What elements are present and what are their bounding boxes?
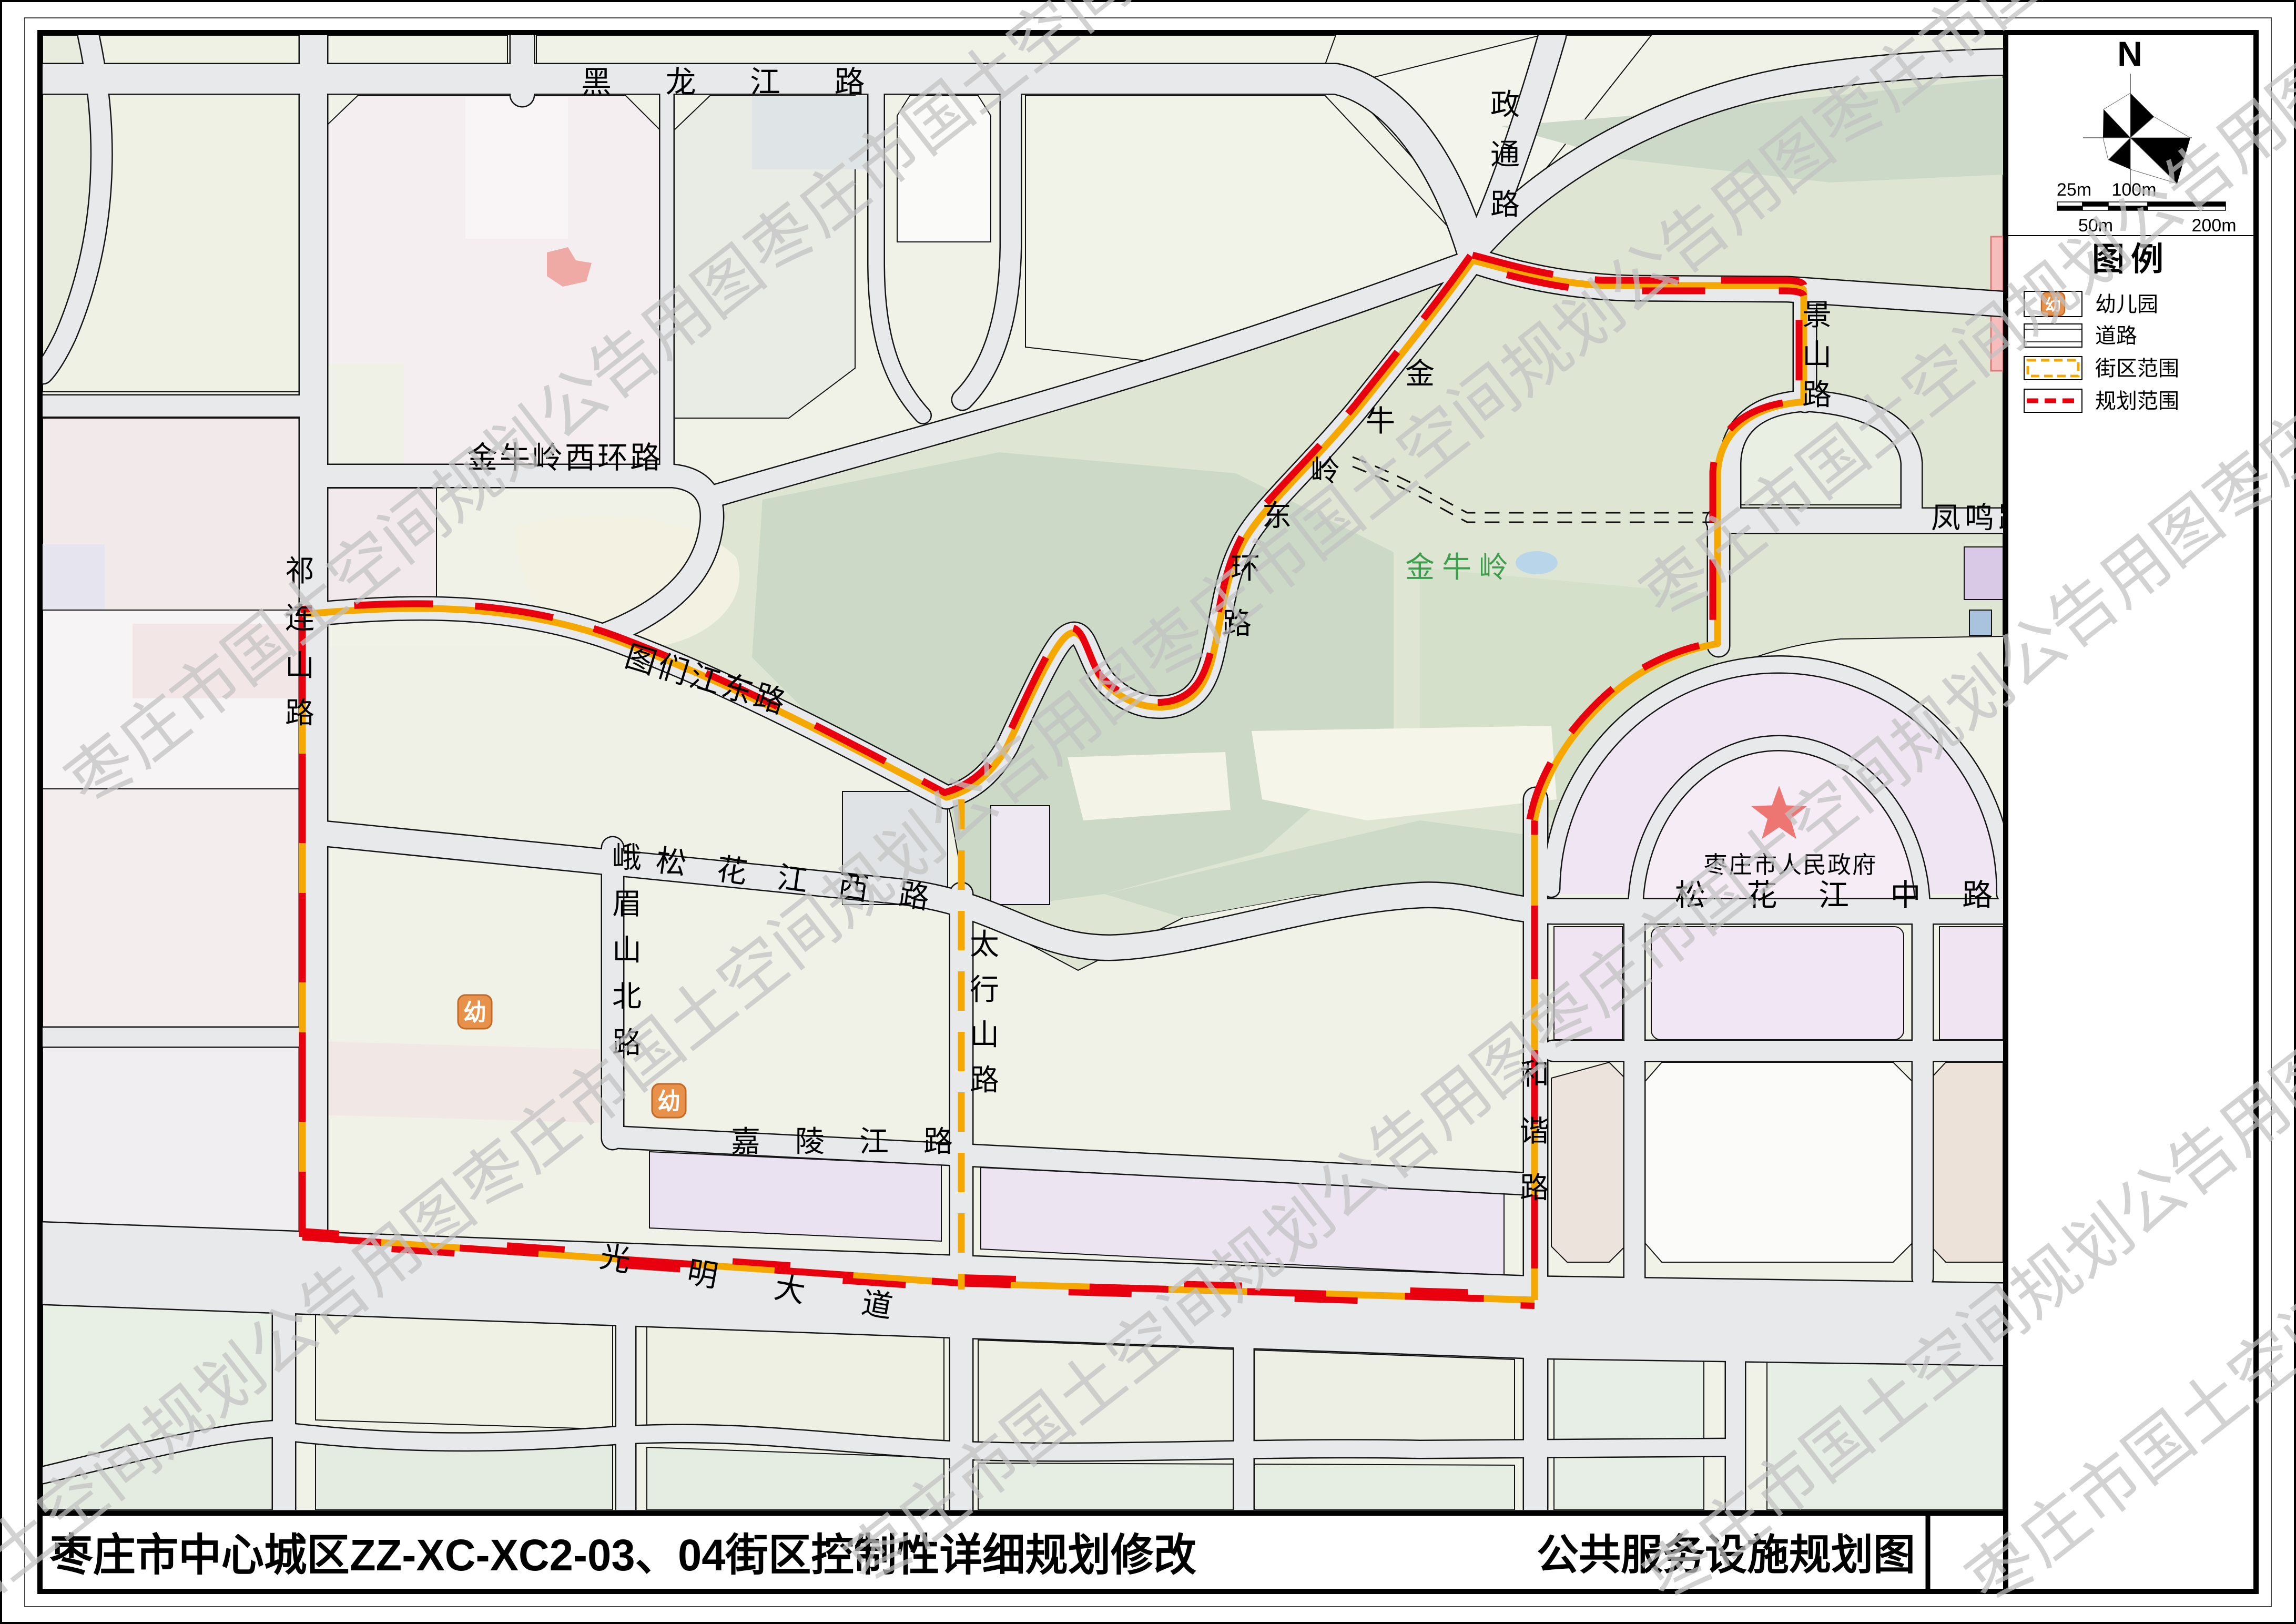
svg-text:金: 金 [1405, 358, 1435, 391]
svg-text:行: 行 [970, 974, 999, 1007]
svg-text:山: 山 [612, 935, 642, 967]
svg-text:路: 路 [1520, 1172, 1549, 1205]
svg-text:路: 路 [970, 1064, 999, 1097]
svg-text:街区范围: 街区范围 [2095, 357, 2179, 380]
svg-text:山: 山 [970, 1019, 999, 1052]
svg-text:谐: 谐 [1520, 1115, 1549, 1148]
svg-text:太: 太 [970, 929, 999, 961]
svg-text:幼: 幼 [463, 1000, 486, 1026]
svg-text:路: 路 [285, 697, 314, 730]
svg-text:嘉 陵 江 路: 嘉 陵 江 路 [731, 1126, 967, 1159]
svg-text:金牛岭: 金牛岭 [1405, 552, 1516, 584]
svg-text:规划范围: 规划范围 [2095, 389, 2179, 413]
svg-text:枣庄市中心城区ZZ-XC-XC2-03、04街区控制性详细规: 枣庄市中心城区ZZ-XC-XC2-03、04街区控制性详细规划修改 [49, 1530, 1196, 1580]
svg-text:景: 景 [1802, 299, 1832, 332]
svg-text:眉: 眉 [612, 888, 642, 921]
svg-text:黑 龙 江 路: 黑 龙 江 路 [581, 65, 888, 99]
svg-text:北: 北 [612, 981, 642, 1013]
svg-text:政: 政 [1490, 89, 1520, 121]
svg-text:25m: 25m [2057, 180, 2091, 200]
svg-text:山: 山 [1802, 339, 1832, 372]
svg-text:通: 通 [1490, 139, 1520, 171]
svg-text:幼: 幼 [657, 1089, 680, 1114]
svg-text:峨: 峨 [612, 842, 642, 875]
svg-text:路: 路 [1490, 189, 1520, 221]
svg-text:路: 路 [1802, 379, 1832, 412]
svg-text:N: N [2117, 34, 2142, 73]
svg-text:道路: 道路 [2095, 324, 2137, 348]
